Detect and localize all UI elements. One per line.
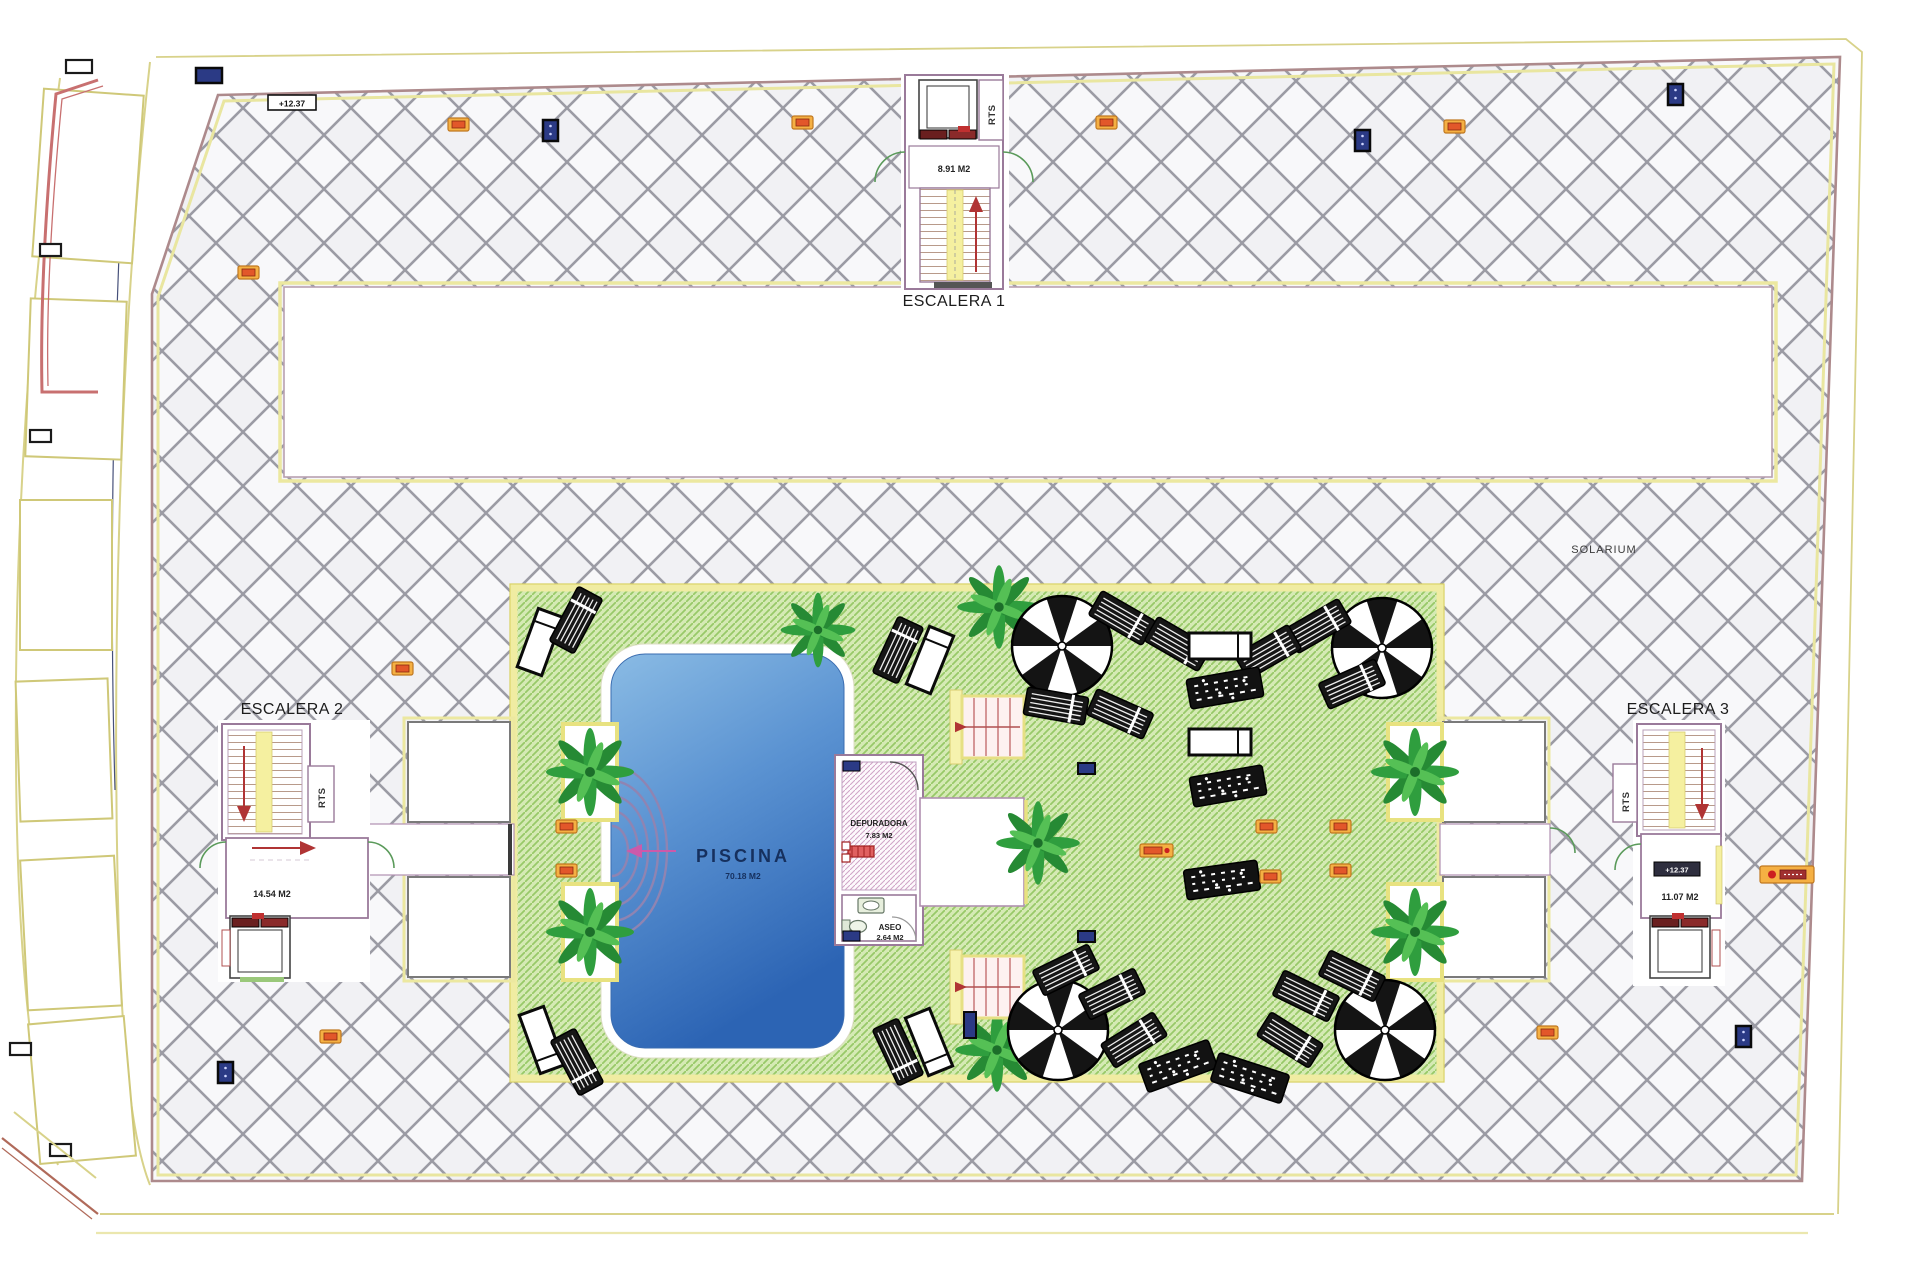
orange-fixture-icon [556, 820, 577, 833]
palm-tree-icon [1371, 728, 1459, 816]
escalera3-area-label: 11.07 M2 [1661, 892, 1698, 902]
orange-fixture-icon [320, 1030, 341, 1043]
palm-tree-icon [546, 728, 634, 816]
orange-fixture-icon [1330, 820, 1351, 833]
rts-label-3: RTS [1621, 792, 1632, 813]
escalera2-label: ESCALERA 2 [241, 701, 344, 718]
roof-opening [280, 283, 1776, 481]
escalera2-core: ESCALERA 2 RTS 14.54 M2 [200, 701, 394, 982]
rts-label-1: RTS [987, 105, 998, 126]
sink-icon [858, 898, 884, 913]
elevator-1 [919, 80, 977, 139]
orange-fixture-icon [1260, 870, 1281, 883]
roof-plan-drawing: SOLARIUM +12.37 [0, 0, 1920, 1280]
elevation-marker-label: +12.37 [279, 99, 306, 109]
door-marker-icon [1078, 763, 1095, 774]
orange-fixture-icon [1140, 844, 1173, 857]
elevator-2 [222, 913, 290, 978]
palm-tree-icon [1371, 888, 1459, 976]
rts-label-2: RTS [317, 788, 328, 809]
escalera3-label: ESCALERA 3 [1627, 701, 1730, 718]
sun-lounger-white-icon [1189, 729, 1251, 755]
escalera2-area-label: 14.54 M2 [253, 889, 291, 899]
left-facade-strip [10, 60, 150, 1185]
orange-fixture-icon [448, 118, 469, 131]
stair-flight-1 [920, 188, 992, 288]
orange-fixture-icon [1096, 116, 1117, 129]
door-marker-icon [543, 120, 558, 141]
pool: PISCINA 70.18 M2 [601, 644, 854, 1058]
door-marker-icon [1355, 130, 1370, 151]
solarium-label: SOLARIUM [1571, 544, 1636, 556]
orange-fixture-icon [1537, 1026, 1558, 1039]
orange-fixture-icon [392, 662, 413, 675]
orange-fixture-icon [792, 116, 813, 129]
door-marker-icon [843, 931, 860, 941]
orange-fixture-icon [238, 266, 259, 279]
pool-area-label: 70.18 M2 [725, 871, 761, 881]
escalera1-area-label: 8.91 M2 [938, 164, 971, 174]
elevation-marker: +12.37 [268, 95, 316, 110]
stair-flight-3 [1637, 724, 1721, 836]
depuradora-label: DEPURADORA [850, 819, 908, 828]
door-marker-icon [1736, 1026, 1751, 1047]
escalera1-label: ESCALERA 1 [903, 293, 1006, 310]
parasol-icon [1335, 980, 1435, 1080]
sun-lounger-white-icon [1189, 633, 1251, 659]
orange-fixture-icon [1760, 866, 1814, 883]
depuradora-area-label: 7.83 M2 [865, 831, 892, 840]
pool-label: PISCINA [696, 846, 790, 866]
palm-tree-icon [996, 801, 1080, 885]
orange-fixture-icon [1330, 864, 1351, 877]
elevator-3 [1650, 913, 1720, 978]
orange-fixture-icon [556, 864, 577, 877]
door-marker-icon [843, 761, 860, 771]
door-marker-icon [964, 1012, 976, 1038]
escalera3-elevation-label: +12.37 [1665, 866, 1688, 875]
door-marker-icon [218, 1062, 233, 1083]
door-marker-icon [1078, 931, 1095, 942]
palm-tree-icon [546, 888, 634, 976]
door-marker-icon [196, 68, 222, 83]
palm-tree-icon [781, 593, 856, 668]
orange-fixture-icon [1444, 120, 1465, 133]
floorplan-canvas: SOLARIUM +12.37 [0, 0, 1920, 1280]
door-marker-icon [1668, 84, 1683, 105]
stair-flight-2 [222, 724, 310, 840]
aseo-area-label: 2.64 M2 [876, 933, 903, 942]
orange-fixture-icon [1256, 820, 1277, 833]
aseo-label: ASEO [879, 923, 902, 932]
